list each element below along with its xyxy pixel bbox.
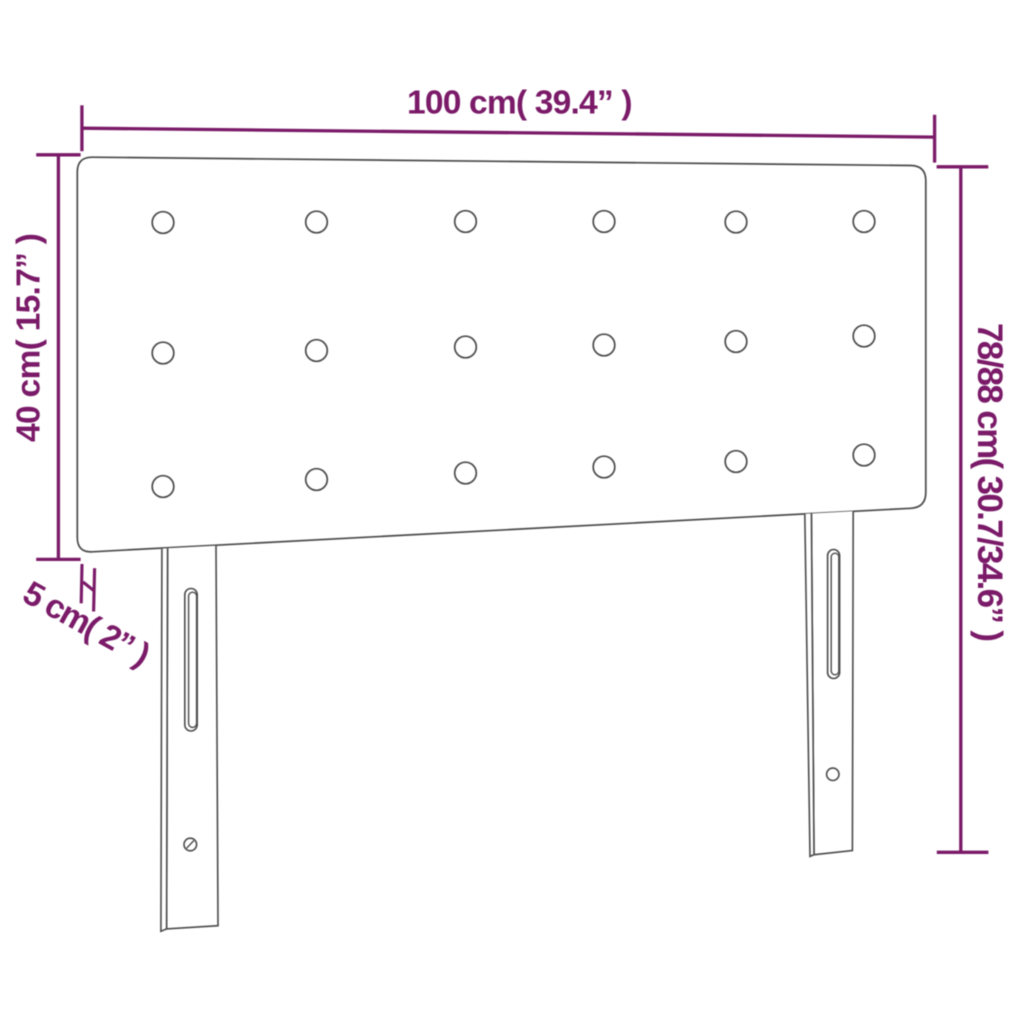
svg-text:100 cm( 39.4” ): 100 cm( 39.4” ) xyxy=(407,84,633,121)
svg-text:78/88 cm( 30.7/34.6” ): 78/88 cm( 30.7/34.6” ) xyxy=(970,323,1009,642)
svg-text:40 cm( 15.7” ): 40 cm( 15.7” ) xyxy=(10,233,47,442)
